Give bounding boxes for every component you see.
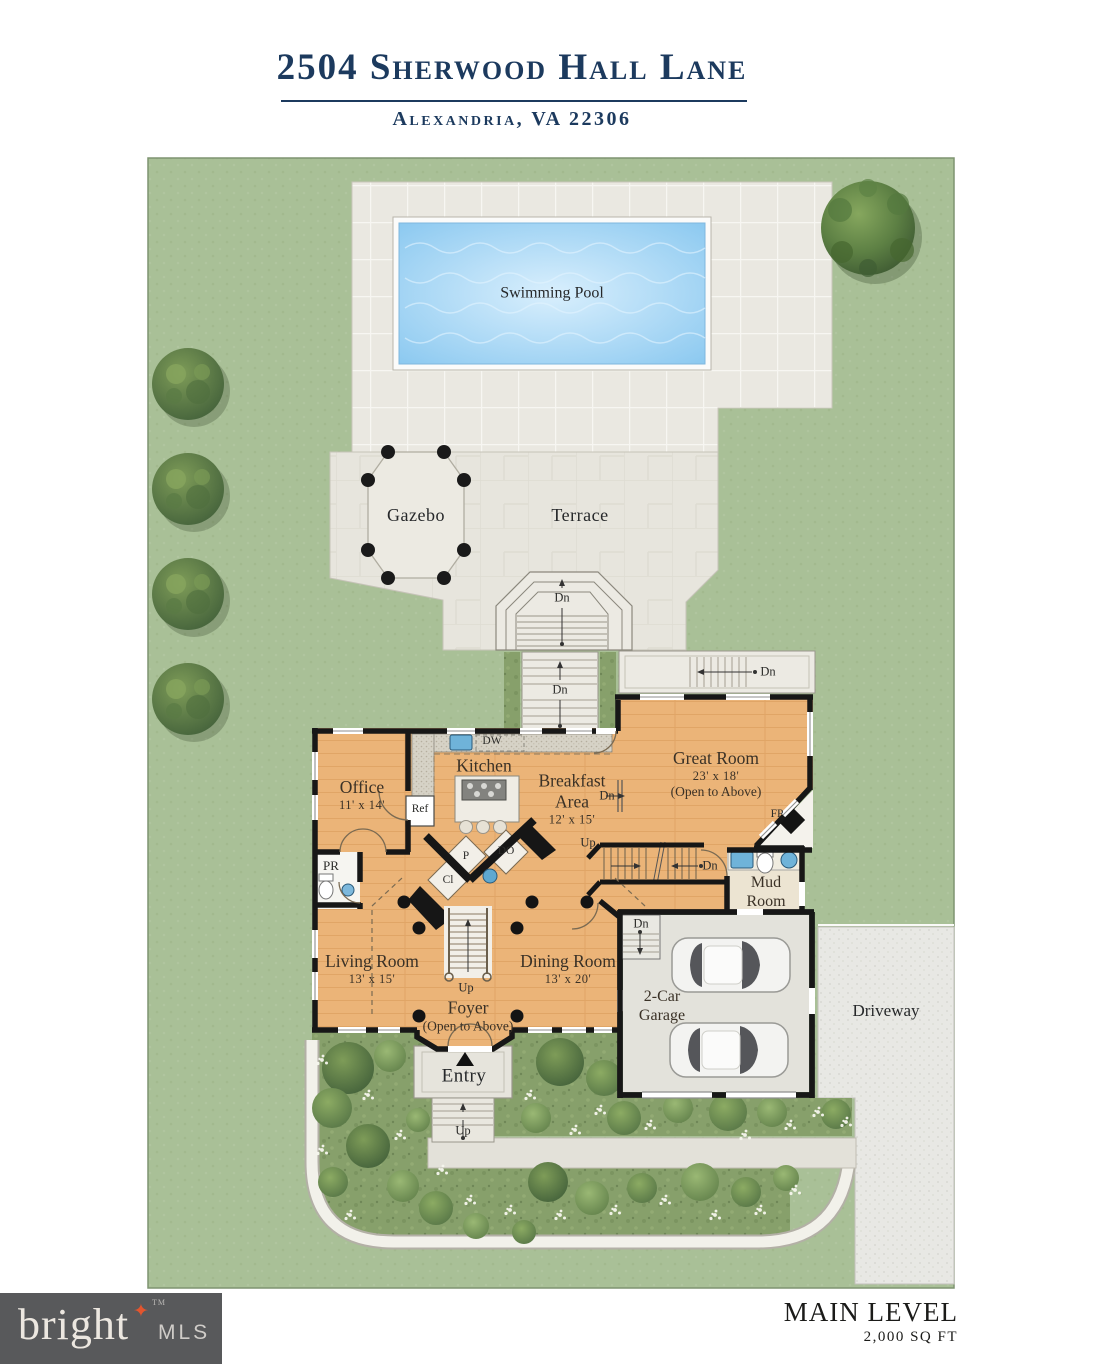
stool (477, 821, 490, 834)
label-fireplace: FP (771, 808, 784, 822)
label-pantry: P (463, 850, 469, 864)
floorplan-page: 2504 Sherwood Hall Lane Alexandria, VA 2… (0, 0, 1104, 1364)
sink (781, 852, 797, 868)
level-area: 2,000 SQ FT (784, 1329, 958, 1346)
label-dn-deck-stair: Dn (760, 665, 775, 680)
car (670, 1023, 788, 1077)
star-icon: ✦ (133, 1300, 149, 1323)
label-swimming-pool: Swimming Pool (500, 283, 604, 302)
brand-wordmark: bright (18, 1299, 129, 1350)
kitchen-sink (450, 735, 472, 750)
label-up-entry-steps: Up (455, 1124, 470, 1139)
label-dn-back-stair: Dn (552, 683, 567, 698)
label-living-room: Living Room 13' x 15' (325, 951, 419, 987)
foyer-stair (444, 906, 492, 981)
label-refrigerator: Ref (412, 803, 429, 817)
stool (460, 821, 473, 834)
label-powder-room: PR (323, 858, 339, 874)
label-office: Office 11' x 14' (339, 777, 385, 813)
label-do-closet: DO (498, 845, 515, 859)
label-dn-main-stair: Dn (702, 859, 717, 874)
label-terrace: Terrace (551, 505, 608, 527)
label-garage: 2-Car Garage (626, 987, 698, 1025)
label-mud-room: Mud Room (734, 873, 798, 911)
trademark: TM (152, 1298, 166, 1307)
mud-room-fixtures (728, 850, 802, 873)
label-gazebo: Gazebo (387, 505, 445, 527)
label-dn-terrace-steps: Dn (554, 591, 569, 606)
brightmls-logo: bright ✦ TM MLS (0, 1293, 222, 1364)
bar-sink (483, 869, 497, 883)
label-up-main-stair: Up (580, 836, 595, 851)
label-great-room: Great Room 23' x 18' (Open to Above) (671, 748, 762, 800)
car (672, 938, 790, 992)
label-foyer: Foyer (Open to Above) (423, 997, 514, 1034)
toilet (319, 881, 333, 899)
brand-suffix: MLS (158, 1321, 210, 1345)
utility-sink (731, 852, 753, 868)
toilet (757, 853, 773, 873)
label-entry: Entry (442, 1066, 487, 1089)
level-block: MAIN LEVEL 2,000 SQ FT (784, 1297, 958, 1346)
label-dishwasher: DW (482, 735, 501, 749)
label-dn-breakfast-step: Dn (599, 789, 614, 804)
deck-stair (619, 651, 815, 693)
label-dn-garage-stair: Dn (633, 917, 648, 932)
label-driveway: Driveway (852, 1001, 919, 1021)
sink (342, 884, 354, 896)
label-dining-room: Dining Room 13' x 20' (520, 951, 616, 987)
label-kitchen: Kitchen (456, 756, 511, 777)
label-closet: Cl (443, 874, 454, 888)
level-title: MAIN LEVEL (784, 1297, 958, 1328)
label-up-foyer-stair: Up (458, 981, 473, 996)
site-plan: Swimming Pool Gazebo Terrace Driveway En… (0, 0, 1104, 1364)
